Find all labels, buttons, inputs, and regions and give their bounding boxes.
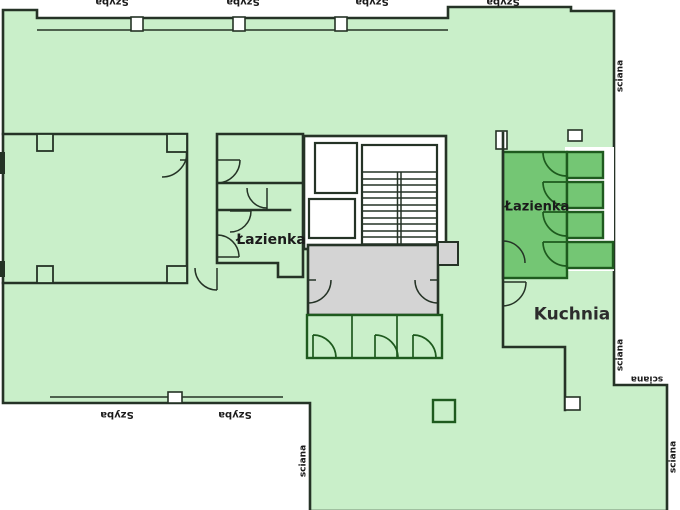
wall-stub xyxy=(0,261,5,277)
elevator-lobby xyxy=(308,242,458,315)
elevator-shaft-1 xyxy=(315,143,357,193)
wall-stub xyxy=(0,152,5,174)
toilet-stalls-center xyxy=(307,315,442,358)
label-kitchen: Kuchnia xyxy=(534,307,611,324)
label-wall-bottom-center: sciana xyxy=(300,445,309,477)
staircase xyxy=(362,145,437,245)
wall-tab xyxy=(565,397,580,410)
label-glass-bottom-2: Szyba xyxy=(218,409,251,419)
lobby-shaft-tab xyxy=(438,242,458,265)
stair-outline xyxy=(362,145,437,245)
glass-mullion xyxy=(233,17,245,31)
floor-plan: Szyba Szyba Szyba Szyba Szyba Szyba scia… xyxy=(0,0,680,510)
label-glass-top-2: Szyba xyxy=(226,0,259,6)
label-wall-step: sciana xyxy=(631,374,663,383)
label-bathroom-left: Łazienka xyxy=(236,233,306,247)
column xyxy=(433,400,455,422)
lobby-room xyxy=(308,245,438,315)
wall-notch xyxy=(167,134,187,152)
elevator-shaft-2 xyxy=(309,199,355,238)
glass-mullion xyxy=(168,392,182,403)
glass-mullion xyxy=(131,17,143,31)
wall-tab xyxy=(496,131,507,149)
stall xyxy=(567,242,613,268)
stall xyxy=(567,182,603,208)
label-bathroom-right: Łazienka xyxy=(505,201,570,214)
label-wall-right-mid: sciana xyxy=(617,339,626,371)
label-glass-top-3: Szyba xyxy=(355,0,388,6)
label-glass-bottom-1: Szyba xyxy=(100,409,133,419)
wall-notch xyxy=(167,266,187,283)
label-wall-right-top: sciana xyxy=(617,60,626,92)
stall xyxy=(567,212,603,238)
wall-notch xyxy=(37,134,53,151)
wall-notch xyxy=(37,266,53,283)
label-glass-top-1: Szyba xyxy=(95,0,128,6)
wall-tab xyxy=(568,130,582,141)
bathroom-right-room xyxy=(503,152,567,278)
floor-plan-svg xyxy=(0,0,680,510)
label-glass-top-4: Szyba xyxy=(486,0,519,6)
label-wall-right-bottom: sciana xyxy=(670,441,679,473)
stall xyxy=(567,152,603,178)
central-core xyxy=(304,136,446,249)
glass-mullion xyxy=(335,17,347,31)
